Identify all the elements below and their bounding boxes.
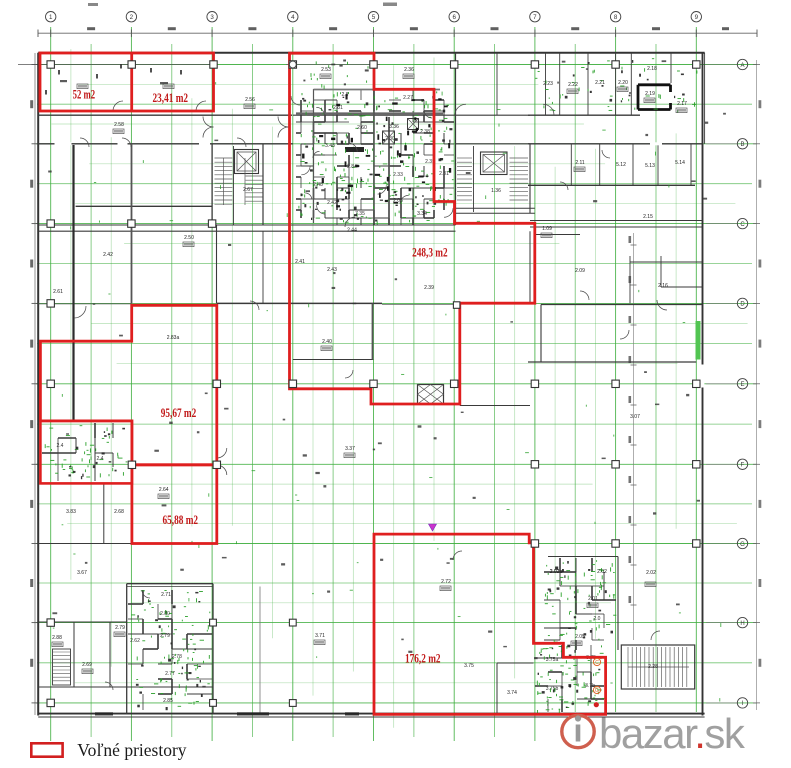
svg-text:2.69: 2.69 <box>82 662 92 668</box>
svg-text:F: F <box>741 463 745 469</box>
svg-text:2.17: 2.17 <box>677 101 687 107</box>
svg-text:3.37: 3.37 <box>345 446 355 452</box>
svg-text:2.15: 2.15 <box>643 214 653 220</box>
svg-text:23,41 m2: 23,41 m2 <box>153 91 189 105</box>
svg-text:2.4: 2.4 <box>97 456 104 462</box>
svg-text:2.50: 2.50 <box>184 235 194 241</box>
svg-text:bazar.sk: bazar.sk <box>599 710 746 757</box>
svg-text:G: G <box>595 688 599 694</box>
svg-text:B: B <box>740 142 744 148</box>
svg-text:5.12: 5.12 <box>616 162 626 168</box>
svg-text:7: 7 <box>533 14 537 21</box>
svg-text:2.39: 2.39 <box>424 285 434 291</box>
svg-text:5.14: 5.14 <box>675 160 685 166</box>
svg-text:2.88: 2.88 <box>52 635 62 641</box>
svg-text:Voľné priestory: Voľné priestory <box>77 740 187 760</box>
svg-text:2.31: 2.31 <box>439 171 449 177</box>
svg-text:2.18: 2.18 <box>647 66 657 72</box>
svg-text:2.38: 2.38 <box>420 129 430 135</box>
svg-text:2.16: 2.16 <box>658 283 668 289</box>
svg-text:176,2 m2: 176,2 m2 <box>405 652 441 666</box>
svg-text:2.23: 2.23 <box>543 81 553 87</box>
svg-text:2.02: 2.02 <box>646 570 656 576</box>
svg-text:3.74: 3.74 <box>507 690 517 696</box>
svg-text:2.58: 2.58 <box>114 122 124 128</box>
svg-text:2.78: 2.78 <box>172 654 182 660</box>
svg-text:2.62: 2.62 <box>130 638 140 644</box>
svg-text:1: 1 <box>49 14 53 21</box>
svg-text:2.11: 2.11 <box>575 160 585 166</box>
svg-text:2.01: 2.01 <box>588 596 598 602</box>
svg-text:C: C <box>595 660 599 666</box>
svg-text:2.72: 2.72 <box>441 579 451 585</box>
svg-text:2.21: 2.21 <box>595 80 605 86</box>
svg-text:3: 3 <box>210 14 214 21</box>
svg-text:A: A <box>740 63 744 69</box>
svg-text:2.05: 2.05 <box>575 634 585 640</box>
svg-text:2.8: 2.8 <box>342 92 349 98</box>
svg-text:2.30: 2.30 <box>385 136 395 142</box>
svg-text:2.77: 2.77 <box>165 671 175 677</box>
svg-text:2.43: 2.43 <box>327 267 337 273</box>
svg-text:52 m2: 52 m2 <box>73 88 96 102</box>
svg-text:2.53: 2.53 <box>321 67 331 73</box>
svg-text:2.41: 2.41 <box>295 259 305 265</box>
svg-text:2.20: 2.20 <box>618 80 628 86</box>
svg-text:2.02a: 2.02a <box>550 569 563 575</box>
svg-text:3.67: 3.67 <box>77 570 87 576</box>
svg-text:248,3 m2: 248,3 m2 <box>412 246 448 260</box>
svg-text:3.83: 3.83 <box>66 509 76 515</box>
svg-text:7.35: 7.35 <box>355 211 365 217</box>
svg-text:2.02: 2.02 <box>597 569 607 575</box>
svg-text:2.09: 2.09 <box>575 268 585 274</box>
svg-text:2.83a: 2.83a <box>167 335 180 341</box>
svg-text:95,67 m2: 95,67 m2 <box>161 406 197 420</box>
svg-text:1.09: 1.09 <box>542 226 552 232</box>
svg-text:2.56: 2.56 <box>245 97 255 103</box>
svg-text:2.80: 2.80 <box>160 611 170 617</box>
svg-text:E: E <box>740 382 744 388</box>
svg-text:2.28: 2.28 <box>648 664 658 670</box>
svg-text:2.42: 2.42 <box>103 252 113 258</box>
svg-text:8: 8 <box>614 14 618 21</box>
svg-text:3.07: 3.07 <box>630 414 640 420</box>
svg-text:2.68: 2.68 <box>114 509 124 515</box>
svg-text:2.42: 2.42 <box>327 200 337 206</box>
svg-text:C: C <box>740 222 745 228</box>
svg-text:2.40: 2.40 <box>322 339 332 345</box>
svg-text:3.75b: 3.75b <box>546 686 559 692</box>
svg-text:2.61: 2.61 <box>53 289 63 295</box>
svg-text:2.19: 2.19 <box>645 91 655 97</box>
svg-text:3.36: 3.36 <box>389 124 399 130</box>
svg-text:2.22: 2.22 <box>568 82 578 88</box>
svg-text:2.79: 2.79 <box>160 633 170 639</box>
svg-text:5.13: 5.13 <box>645 163 655 169</box>
svg-text:3.75a: 3.75a <box>546 657 559 663</box>
svg-text:65,88 m2: 65,88 m2 <box>163 513 199 527</box>
svg-text:G: G <box>740 542 745 548</box>
svg-text:3.34: 3.34 <box>417 211 427 217</box>
svg-text:2: 2 <box>130 14 134 21</box>
svg-text:2.79: 2.79 <box>115 625 125 631</box>
svg-text:2.60: 2.60 <box>357 125 367 131</box>
svg-text:3.75: 3.75 <box>464 663 474 669</box>
svg-text:2.48: 2.48 <box>313 182 323 188</box>
svg-text:2.67: 2.67 <box>243 187 253 193</box>
svg-text:2.36: 2.36 <box>404 67 414 73</box>
svg-text:D: D <box>740 302 745 308</box>
svg-text:3.48: 3.48 <box>325 143 335 149</box>
svg-text:2.44: 2.44 <box>347 228 357 234</box>
svg-text:2.4: 2.4 <box>57 443 64 449</box>
svg-text:2.85: 2.85 <box>163 698 173 704</box>
svg-text:2.33: 2.33 <box>393 172 403 178</box>
svg-text:9: 9 <box>695 14 699 21</box>
svg-text:4: 4 <box>291 14 295 21</box>
svg-text:2.64: 2.64 <box>159 487 169 493</box>
svg-text:6: 6 <box>452 14 456 21</box>
svg-text:3.71: 3.71 <box>315 633 325 639</box>
svg-text:2.71: 2.71 <box>161 592 171 598</box>
svg-text:5: 5 <box>372 14 376 21</box>
svg-text:H: H <box>740 621 744 627</box>
svg-text:2.0: 2.0 <box>594 616 601 622</box>
svg-text:1.36: 1.36 <box>491 188 501 194</box>
